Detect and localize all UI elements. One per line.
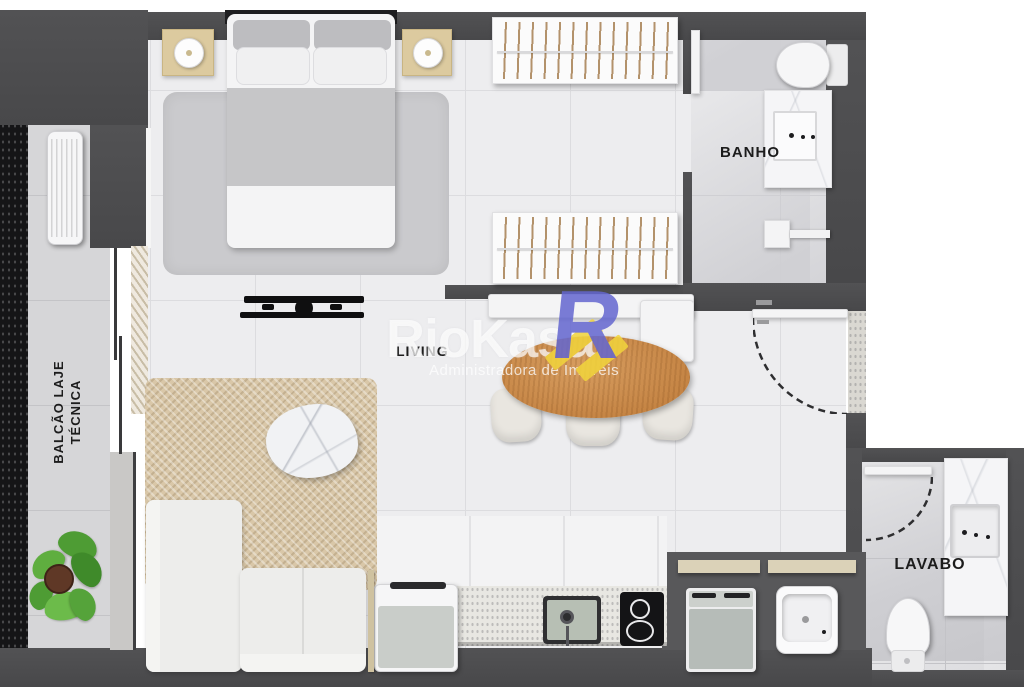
- sofa-seat: [240, 568, 366, 672]
- nightstand-left: [162, 29, 214, 76]
- service-shelf: [768, 560, 856, 573]
- lavabo-toilet: [884, 598, 932, 674]
- nightstand-right: [402, 29, 452, 76]
- lavabo-sink: [950, 504, 1000, 558]
- entry-door-swing-arc: [753, 318, 847, 414]
- living-label: LIVING: [396, 343, 449, 359]
- floor-plan: LAVABO BANHO BALCÃO LAJE TÉCNICA LIVING: [0, 0, 1024, 687]
- wall-entry-lower: [846, 413, 866, 452]
- laundry-sink: [776, 586, 838, 654]
- balcao-label: BALCÃO LAJE TÉCNICA: [50, 337, 84, 487]
- faucet-icon: [560, 610, 574, 624]
- wall-bathroom-left-lower: [683, 172, 692, 283]
- closet-rack-bottom: [492, 212, 678, 284]
- double-bed: [225, 10, 397, 248]
- bedroom-window: [146, 128, 151, 248]
- wall-balcony-lower: [110, 452, 136, 650]
- kitchen-sink: [543, 596, 601, 644]
- bathroom-door-leaf: [691, 30, 700, 94]
- towel-bar: [790, 230, 830, 238]
- sliding-door-panel-1: [114, 248, 117, 360]
- faucet-icon: [789, 133, 794, 138]
- flush-button-icon: [904, 658, 910, 664]
- wall-balcony-upper: [90, 125, 148, 248]
- sofa-chaise: [146, 500, 242, 672]
- lavabo-label: LAVABO: [884, 556, 976, 574]
- fridge-handle: [390, 582, 446, 589]
- bathroom-toilet: [776, 42, 850, 88]
- potted-plant: [24, 524, 108, 636]
- tv-panel: [237, 294, 369, 322]
- ac-condenser: [47, 131, 83, 245]
- washer-handle: [692, 593, 716, 598]
- wall-bathroom-bottom: [683, 283, 866, 311]
- refrigerator: [374, 584, 458, 672]
- entry-door-leaf: [752, 309, 848, 318]
- pillow: [314, 20, 391, 50]
- service-shelf: [678, 560, 760, 573]
- towel-holder: [764, 220, 790, 248]
- faucet-icon: [822, 630, 826, 634]
- dining-table: [502, 336, 690, 418]
- table-lamp-icon: [413, 38, 443, 68]
- drain-icon: [802, 616, 809, 623]
- banho-label: BANHO: [712, 144, 788, 161]
- washing-machine: [686, 588, 756, 672]
- washer-handle: [724, 593, 750, 598]
- wall-top-left-mass: [0, 10, 148, 125]
- entry-threshold: [848, 311, 866, 413]
- closet-rack-top: [492, 17, 678, 84]
- cushion-seam: [302, 568, 304, 654]
- bathroom-vanity: [764, 90, 832, 188]
- wall-lavabo-bottom: [846, 670, 1024, 687]
- plant-pot-icon: [44, 564, 74, 594]
- burner-icon: [626, 620, 654, 642]
- lavabo-door-swing-arc: [866, 476, 933, 542]
- faucet-icon: [962, 530, 967, 535]
- floor-lamp: [368, 570, 374, 672]
- kitchen-cabinets: [377, 516, 667, 588]
- pillow: [236, 47, 310, 85]
- pillow: [313, 47, 387, 85]
- sliding-door-panel-2: [119, 336, 122, 454]
- table-lamp-icon: [174, 38, 204, 68]
- blanket: [227, 88, 395, 186]
- lavabo-door-leaf: [864, 466, 932, 475]
- ac-fins-icon: [51, 139, 79, 237]
- toilet-bowl: [776, 42, 830, 88]
- burner-icon: [630, 599, 650, 619]
- pillow: [233, 20, 310, 50]
- coffee-table: [266, 404, 358, 478]
- cooktop: [620, 592, 664, 646]
- tv-mount-icon: [295, 299, 313, 317]
- wall-lavabo-right: [1006, 448, 1024, 687]
- entry-door-handle: [756, 300, 772, 305]
